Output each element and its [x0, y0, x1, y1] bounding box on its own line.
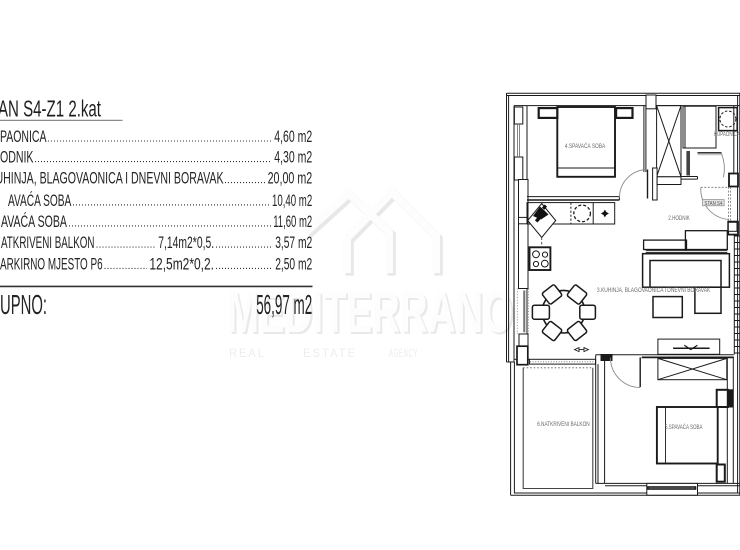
svg-text:ESTATE: ESTATE [303, 348, 357, 360]
svg-text:REAL: REAL [229, 348, 266, 360]
svg-text:UPNO:: UPNO: [0, 289, 47, 320]
svg-text:KUPAONICA: KUPAONICA [714, 132, 740, 138]
svg-text:11,60 m2: 11,60 m2 [273, 213, 312, 231]
svg-text:ATKRIVENI BALKON: ATKRIVENI BALKON [1, 234, 95, 252]
svg-text:12,5m2*0,2.: 12,5m2*0,2. [149, 255, 214, 273]
svg-text:AGENCY: AGENCY [389, 348, 418, 360]
svg-text:3,57 m2: 3,57 m2 [275, 234, 312, 252]
svg-text:AVAĆA SOBA: AVAĆA SOBA [8, 191, 71, 210]
svg-text:5.SPAVAĆA SOBA: 5.SPAVAĆA SOBA [665, 424, 703, 431]
svg-text:10,40 m2: 10,40 m2 [272, 192, 312, 210]
svg-text:ODNIK: ODNIK [0, 149, 34, 167]
svg-text:STAN S4: STAN S4 [704, 201, 722, 207]
svg-text:2.HODNIK: 2.HODNIK [668, 215, 690, 222]
svg-text:2,50 m2: 2,50 m2 [275, 255, 312, 273]
svg-text:AN S4-Z1 2.kat: AN S4-Z1 2.kat [0, 96, 101, 122]
svg-text:AVAĆA SOBA: AVAĆA SOBA [1, 212, 67, 231]
svg-text:PAONICA: PAONICA [0, 128, 47, 146]
svg-text:3.KUHINJA, BLAGOVAONICA I DNEV: 3.KUHINJA, BLAGOVAONICA I DNEVNI BORAVAK [597, 287, 711, 294]
svg-text:4,30 m2: 4,30 m2 [274, 149, 312, 167]
svg-text:ARKIRNO MJESTO P6: ARKIRNO MJESTO P6 [0, 255, 103, 273]
svg-text:56,97 m2: 56,97 m2 [256, 289, 312, 320]
svg-text:4.SPAVAĆA SOBA: 4.SPAVAĆA SOBA [565, 143, 606, 150]
svg-text:6.NATKRIVENI BALKON: 6.NATKRIVENI BALKON [537, 421, 590, 428]
svg-text:20,00 m2: 20,00 m2 [268, 170, 313, 188]
svg-text:UHINJA, BLAGOVAONICA I DNEVNI: UHINJA, BLAGOVAONICA I DNEVNI BORAVAK [0, 170, 224, 188]
svg-text:4,60 m2: 4,60 m2 [274, 128, 312, 146]
svg-text:7,14m2*0,5.: 7,14m2*0,5. [158, 234, 214, 252]
